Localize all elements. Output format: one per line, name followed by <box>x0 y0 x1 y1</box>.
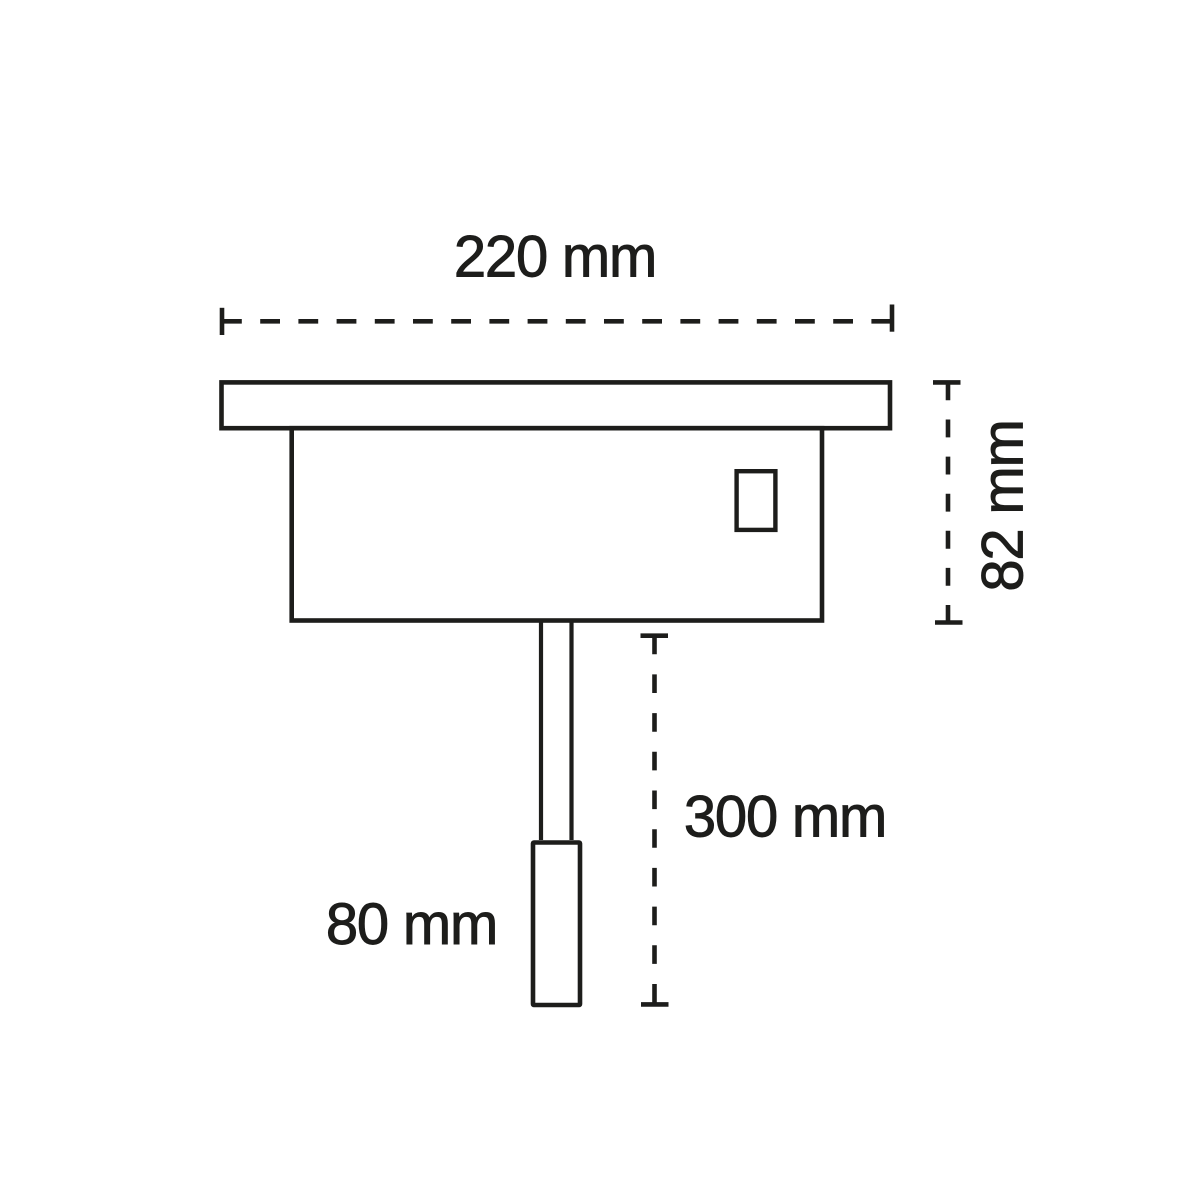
svg-text:300 mm: 300 mm <box>684 785 886 850</box>
svg-text:82 mm: 82 mm <box>971 420 1036 591</box>
svg-text:220 mm: 220 mm <box>454 225 656 290</box>
svg-text:80 mm: 80 mm <box>326 892 497 957</box>
